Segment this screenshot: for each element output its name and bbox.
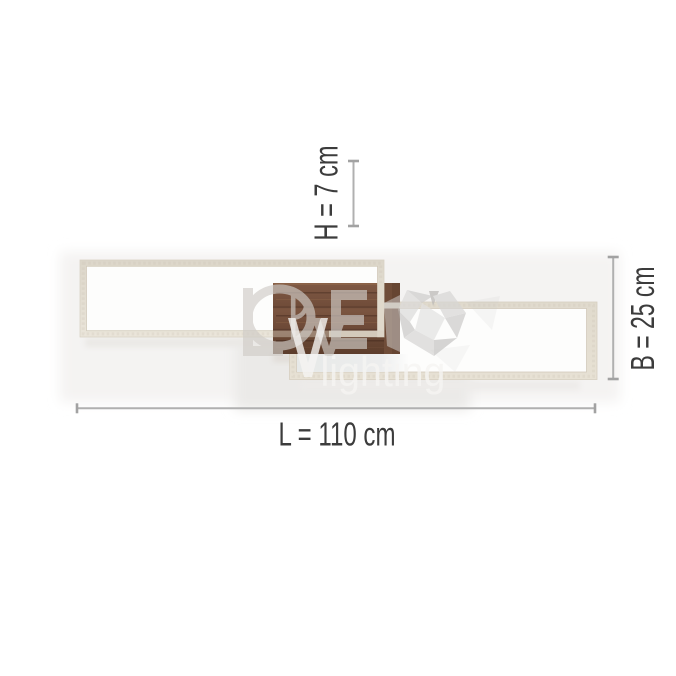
svg-text:lighting: lighting bbox=[321, 348, 446, 395]
svg-text:B = 25 cm: B = 25 cm bbox=[624, 267, 661, 371]
svg-text:L = 110 cm: L = 110 cm bbox=[279, 416, 396, 453]
svg-text:H = 7 cm: H = 7 cm bbox=[308, 146, 345, 241]
